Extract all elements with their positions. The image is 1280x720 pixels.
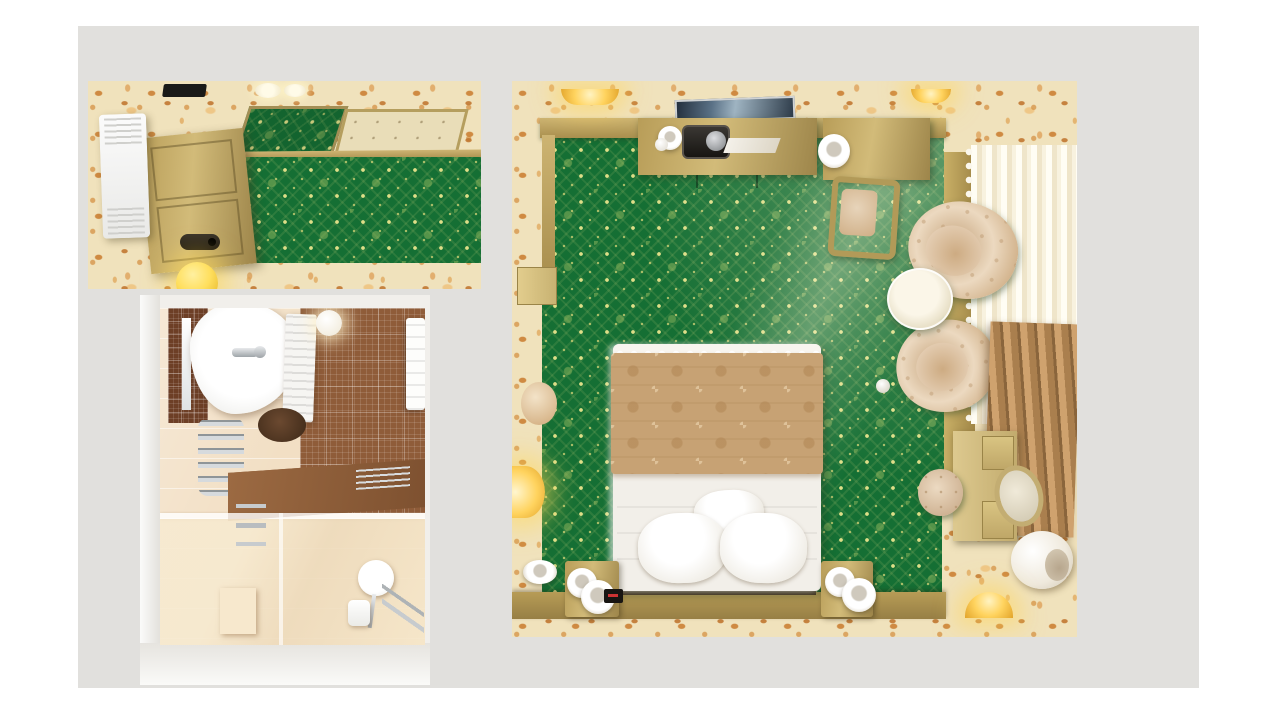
wall-lamp-ring — [523, 560, 557, 584]
bathroom-panel — [140, 295, 430, 685]
ceiling-vent — [162, 84, 207, 97]
wall-lamp-ball — [521, 382, 557, 425]
desk-chair — [827, 176, 900, 261]
chair-cushion — [839, 188, 878, 236]
dresser-front-drawers — [638, 175, 817, 188]
pillow-right — [719, 512, 808, 585]
mirror-strip — [182, 318, 191, 410]
vanity-sink — [190, 308, 298, 414]
round-glass-coffee-table — [887, 268, 953, 330]
shower-fixtures — [236, 494, 266, 556]
left-door-opening — [517, 267, 557, 305]
pillow-left — [637, 511, 728, 584]
air-conditioner — [99, 113, 150, 239]
entry-door — [137, 128, 257, 274]
gold-ceiling-panel — [334, 109, 468, 155]
desk-lamp — [818, 134, 850, 168]
cylinder-lamp — [842, 578, 876, 612]
grab-bars — [382, 584, 424, 642]
waste-bin — [258, 408, 306, 442]
wall-sconce-right — [911, 89, 951, 103]
hanging-towels — [406, 318, 425, 410]
door-knob — [208, 238, 216, 246]
espresso-machine — [682, 125, 730, 159]
shower-step — [220, 588, 256, 634]
left-wall-gold-strip — [542, 135, 555, 275]
niche-bottom-frame — [140, 643, 430, 685]
door-lock — [180, 234, 220, 250]
folded-cloth — [723, 138, 780, 153]
pouf-stool — [918, 469, 963, 516]
damask-bedspread — [611, 353, 823, 474]
double-bed — [613, 344, 821, 591]
milk-creamer — [655, 138, 668, 151]
alarm-clock — [604, 589, 623, 603]
door-panel-inset — [156, 199, 243, 263]
screenshot-root: { "scene": { "type": "3d-interior-render… — [0, 0, 1280, 720]
ac-vent-lines — [104, 117, 142, 144]
armchair-seat-hollow — [912, 338, 973, 396]
hallway-panel — [88, 81, 481, 289]
sink-drain — [254, 346, 266, 358]
vanity-drawer — [982, 436, 1014, 470]
bedroom-panel — [512, 81, 1077, 637]
door-panel-inset — [150, 139, 237, 201]
wall-sconce-left — [561, 89, 619, 105]
glass-ball — [876, 379, 890, 393]
lamp-opening — [1045, 549, 1069, 581]
glass-partition-vertical — [279, 513, 283, 645]
shutter-cabinet — [282, 313, 317, 422]
niche-left-frame — [140, 295, 160, 685]
ceiling-spotlight — [255, 83, 281, 98]
clock-display — [608, 594, 618, 597]
sphere-floor-lamp — [1011, 531, 1073, 589]
bottom-wall-sconce — [965, 592, 1013, 618]
wall-lamp-dome — [512, 466, 545, 518]
soap-dish — [348, 600, 370, 626]
hallway-carpet — [246, 157, 481, 263]
ceiling-globe-light — [316, 310, 342, 336]
bathroom-content — [160, 308, 425, 645]
bedspread-scallop-edge — [611, 468, 823, 478]
ac-vent-lines — [107, 207, 145, 234]
ceiling-spotlight — [284, 84, 306, 97]
kettle-lid — [706, 131, 726, 151]
chrome-rack — [356, 466, 410, 490]
